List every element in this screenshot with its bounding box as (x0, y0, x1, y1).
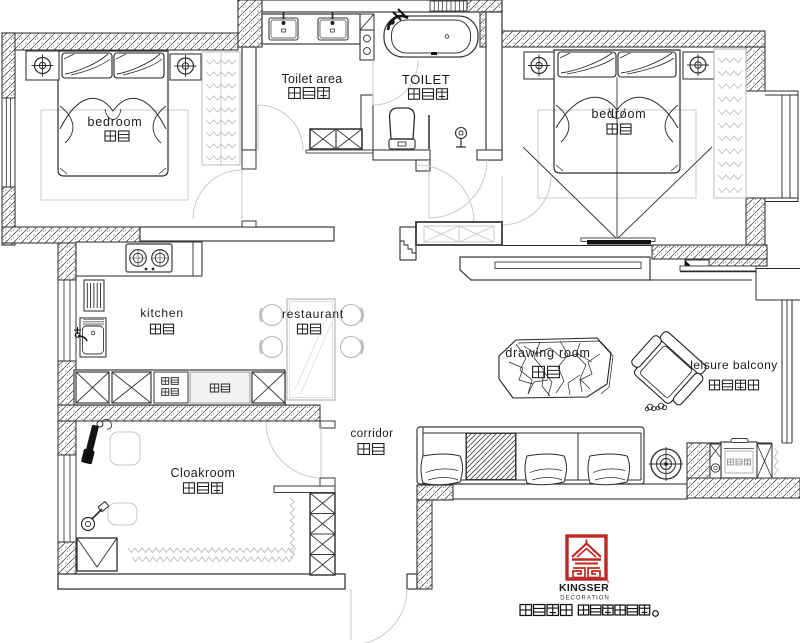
svg-text:restaurant: restaurant (282, 307, 344, 321)
svg-text:KINGSER: KINGSER (559, 582, 609, 594)
svg-text:Cloakroom: Cloakroom (171, 466, 236, 480)
svg-text:DECORATION: DECORATION (560, 596, 610, 602)
svg-text:bedroom: bedroom (88, 115, 143, 129)
svg-text:kitchen: kitchen (140, 306, 184, 320)
svg-text:corridor: corridor (351, 428, 394, 440)
svg-text:leisure balcony: leisure balcony (690, 358, 778, 372)
svg-text:Toilet area: Toilet area (282, 72, 343, 86)
svg-text:drawing room: drawing room (505, 346, 590, 360)
svg-text:TOILET: TOILET (402, 72, 450, 87)
svg-text:bedroom: bedroom (592, 107, 647, 121)
svg-text:’: ’ (607, 579, 610, 589)
